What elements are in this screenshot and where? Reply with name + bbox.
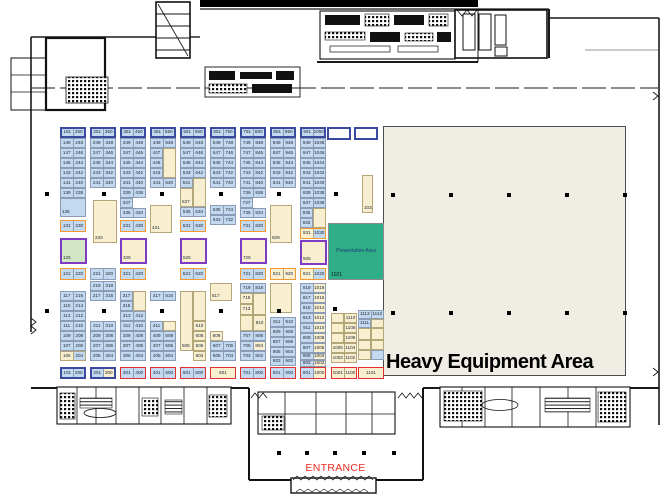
booth-117-216[interactable]: 117216	[60, 291, 86, 301]
booth-449-548[interactable]: 449548	[150, 138, 176, 148]
booth-321-420[interactable]: 321420	[120, 268, 146, 280]
booth-605-704[interactable]: 605704	[210, 351, 236, 361]
booth-cell: 951	[302, 129, 313, 136]
booth-901-1000[interactable]: 9011000	[300, 367, 326, 379]
booth-cell: 1010	[313, 324, 326, 332]
booth-cell: 147	[61, 149, 73, 157]
booth-cell: 907	[301, 344, 313, 352]
booth-343-442[interactable]: 343442	[120, 168, 146, 178]
booth-417-516[interactable]: 417516	[150, 291, 176, 301]
booth-307-406[interactable]: 307406	[120, 341, 146, 351]
booth-139-238[interactable]: 139238	[60, 188, 86, 198]
booth-309-408[interactable]: 309408	[120, 331, 146, 341]
booth-cell: 741	[241, 179, 253, 187]
booth-cell: 1108	[345, 324, 356, 332]
booth-cell: 525	[182, 240, 205, 262]
booth-701-800[interactable]: 701800	[240, 367, 266, 379]
booth-607-706[interactable]: 607706	[210, 341, 236, 351]
booth-111-210[interactable]: 111210	[60, 321, 86, 331]
column-pillar	[565, 193, 569, 197]
booth-cell: 304	[103, 352, 116, 360]
booth-115-214[interactable]: 115214	[60, 301, 86, 311]
booth-cell: 608	[194, 332, 205, 340]
booth-337[interactable]: 337	[120, 198, 133, 208]
booth-cell	[329, 129, 349, 138]
booth-847-946[interactable]: 847946	[270, 148, 296, 158]
booth-113-212[interactable]: 113212	[60, 311, 86, 321]
booth-1001-1100[interactable]: 10011100	[331, 367, 357, 379]
booth-blank[interactable]	[331, 313, 344, 323]
booth-335-434[interactable]: 335434	[120, 208, 146, 218]
booth-cell: 341	[121, 179, 133, 187]
booth-331-430[interactable]: 331430	[120, 220, 146, 232]
booth-925[interactable]: 925	[300, 240, 327, 265]
booth-cell: 903	[301, 361, 313, 366]
booth-219-318[interactable]: 219318	[90, 281, 116, 291]
booth-610[interactable]: 610	[193, 321, 206, 331]
booth-cell: 734	[223, 206, 236, 214]
booth-cell: 351	[122, 129, 133, 136]
booth-737[interactable]: 737	[240, 198, 253, 208]
booth-451-550[interactable]: 451550	[150, 127, 176, 138]
booth-cell	[164, 322, 175, 330]
booth-blank[interactable]	[371, 340, 384, 350]
booth-401-500[interactable]: 401500	[150, 367, 176, 379]
booth-949-1048[interactable]: 9491048	[300, 138, 326, 148]
booth-535-634[interactable]: 535634	[180, 207, 206, 217]
booth-cell: 904	[283, 348, 296, 356]
booth-705-804[interactable]: 705804	[240, 341, 266, 351]
restroom-fixtures	[66, 77, 108, 103]
booth-947-1046[interactable]: 9471046	[300, 148, 326, 158]
booth-249-348[interactable]: 249348	[90, 138, 116, 148]
booth-cell: 649	[211, 139, 223, 147]
booth-811-910[interactable]: 811910	[270, 317, 296, 327]
booth-cell: 412	[133, 312, 146, 320]
booth-810[interactable]: 810	[253, 315, 266, 331]
booth-cell: 901	[301, 368, 313, 378]
booth-606[interactable]: 606	[193, 341, 206, 351]
booth-125[interactable]: 125	[60, 238, 87, 264]
booth-525[interactable]: 525	[180, 238, 207, 264]
column-pillar	[565, 311, 569, 315]
booth-315[interactable]: 315	[120, 301, 133, 311]
booth-blank[interactable]	[331, 333, 344, 343]
booth-cell: 313	[121, 312, 133, 320]
booth-cell: 207	[91, 342, 103, 350]
booth-cell: 1104	[344, 344, 357, 352]
booth-801-900[interactable]: 801900	[270, 367, 296, 379]
floor-plan: Heavy Equipment Area Presentation Area 1…	[0, 0, 669, 500]
booth-345-444[interactable]: 345444	[120, 158, 146, 168]
booth-405-504[interactable]: 405504	[150, 351, 176, 361]
booth-541[interactable]: 541	[180, 178, 193, 188]
presentation-area-label: Presentation Area	[329, 248, 383, 254]
top-left-rooms	[11, 38, 108, 110]
booth-829[interactable]: 829	[270, 205, 292, 243]
booth-cell: 1102	[344, 354, 357, 362]
booth-809-908[interactable]: 809908	[270, 327, 296, 337]
booth-cell: 535	[181, 208, 193, 216]
booth-341-440[interactable]: 341440	[120, 178, 146, 188]
booth-blank[interactable]	[358, 340, 371, 350]
booth-741-840[interactable]: 741840	[240, 178, 266, 188]
booth-cell: 648	[193, 139, 206, 147]
booth-913-1012[interactable]: 9131012	[300, 313, 326, 323]
booth-409-508[interactable]: 409508	[150, 331, 176, 341]
booth-cell: 240	[73, 179, 86, 187]
booth-cell: 115	[61, 302, 73, 310]
booth-339-438[interactable]: 339438	[120, 188, 146, 198]
booth-937-1036[interactable]: 9371036	[300, 198, 326, 208]
booth-1113-1112[interactable]: 11131112	[358, 310, 384, 319]
booth-441-540[interactable]: 441540	[150, 178, 176, 188]
booth-blank[interactable]	[163, 148, 176, 178]
booth-blank[interactable]	[358, 328, 371, 340]
booth-931-1030[interactable]: 9311030	[300, 228, 326, 239]
booth-1111[interactable]: 1111	[358, 319, 371, 328]
booth-cell: 345	[121, 159, 133, 167]
booth-217-316[interactable]: 217316	[90, 291, 116, 301]
booth-cell: 230	[73, 221, 86, 231]
booth-843-942[interactable]: 843942	[270, 168, 296, 178]
booth-blank[interactable]	[354, 127, 378, 140]
column-pillar	[623, 311, 627, 315]
booth-cell: 300	[103, 369, 115, 377]
presentation-area[interactable]: Presentation Area 1021	[328, 223, 384, 280]
booth-cell: 531	[181, 221, 193, 231]
booth-945-1044[interactable]: 9451044	[300, 158, 326, 168]
booth-cell: 919	[301, 284, 313, 292]
booth-803-902[interactable]: 803902	[270, 357, 296, 366]
booth-647-746[interactable]: 647746	[210, 148, 236, 158]
booth-305-404[interactable]: 305404	[120, 351, 146, 361]
booth-135[interactable]: 135	[60, 198, 86, 217]
booth-1005-1104[interactable]: 10051104	[331, 343, 357, 353]
booth-151-250[interactable]: 151250	[60, 127, 86, 138]
booth-205-304[interactable]: 205304	[90, 351, 116, 361]
booth-447[interactable]: 447	[150, 148, 163, 158]
booth-121-220[interactable]: 121220	[60, 268, 86, 280]
booth-1033[interactable]: 1033	[362, 175, 373, 213]
booth-905-1004[interactable]: 9051004	[300, 353, 326, 360]
booth-604[interactable]: 604	[193, 351, 206, 361]
booth-407-506[interactable]: 407506	[150, 341, 176, 351]
booth-cell: 548	[163, 139, 176, 147]
booth-645-744[interactable]: 645744	[210, 158, 236, 168]
booth-cell: 910	[283, 318, 296, 326]
booth-cell: 301	[121, 368, 133, 378]
booth-cell: 246	[73, 149, 86, 157]
booth-909-1008[interactable]: 9091008	[300, 333, 326, 343]
booth-cell: 121	[61, 269, 73, 279]
booth-743-842[interactable]: 743842	[240, 168, 266, 178]
booth-cell: 316	[103, 292, 116, 300]
booth-633-732[interactable]: 633732	[210, 215, 236, 225]
booth-739-838[interactable]: 739838	[240, 188, 266, 198]
booth-cell: 701	[241, 368, 253, 378]
booth-cell: 506	[163, 342, 176, 350]
booth-707-806[interactable]: 707806	[240, 331, 266, 341]
booth-cell: 802	[253, 352, 266, 360]
booth-147-246[interactable]: 147246	[60, 148, 86, 158]
booth-131-230[interactable]: 131230	[60, 220, 86, 232]
booth-cell: 221	[91, 269, 103, 279]
booth-501-600[interactable]: 501600	[180, 367, 206, 379]
booth-935[interactable]: 935	[300, 208, 313, 218]
booth-537[interactable]: 537	[180, 188, 193, 207]
booth-807-906[interactable]: 807906	[270, 337, 296, 347]
booth-cell: 206	[73, 342, 86, 350]
booth-951-1050[interactable]: 9511050	[300, 127, 326, 138]
booth-241-340[interactable]: 241340	[90, 178, 116, 188]
booth-547-646[interactable]: 547646	[180, 148, 206, 158]
booth-cell: 244	[73, 159, 86, 167]
booth-149-248[interactable]: 149248	[60, 138, 86, 148]
booth-919-1018[interactable]: 9191018	[300, 283, 326, 293]
booth-cell: 408	[133, 332, 146, 340]
booth-105-204[interactable]: 105204	[60, 351, 86, 361]
booth-cell: 337	[121, 199, 132, 207]
booth-1003-1102[interactable]: 10031102	[331, 353, 357, 363]
booth-233[interactable]: 233	[93, 200, 117, 243]
booth-349-448[interactable]: 349448	[120, 138, 146, 148]
booth-747-846[interactable]: 747846	[240, 148, 266, 158]
booth-cell: 141	[61, 179, 73, 187]
booth-cell: 1046	[313, 149, 326, 157]
booth-blank[interactable]	[313, 208, 326, 228]
booth-cell: 307	[121, 342, 133, 350]
booth-blank[interactable]	[331, 323, 344, 333]
booth-939-1038[interactable]: 9391038	[300, 188, 326, 198]
booth-221-320[interactable]: 221320	[90, 268, 116, 280]
booth-411[interactable]: 411	[150, 321, 163, 331]
booth-cell: 811	[271, 318, 283, 326]
booth-cell: 844	[253, 159, 266, 167]
booth-cell: 210	[73, 322, 86, 330]
booth-933[interactable]: 933	[300, 218, 313, 228]
booth-cell: 843	[271, 169, 283, 177]
booth-821-920[interactable]: 821920	[270, 268, 296, 280]
booth-cell: 850	[253, 129, 265, 136]
booth-431[interactable]: 431	[150, 205, 172, 233]
booth-cell: 942	[283, 169, 296, 177]
booth-cell: 809	[271, 328, 283, 336]
booth-cell: 441	[151, 179, 163, 187]
booth-745-844[interactable]: 745844	[240, 158, 266, 168]
booth-351-450[interactable]: 351450	[120, 127, 146, 138]
booth-blank[interactable]	[371, 350, 384, 360]
booth-cell: 840	[253, 179, 266, 187]
booth-cell: 739	[241, 189, 253, 197]
booth-313-412[interactable]: 313412	[120, 311, 146, 321]
booth-845-944[interactable]: 845944	[270, 158, 296, 168]
booth-cell: 1016	[313, 294, 326, 302]
booth-521-620[interactable]: 521620	[180, 268, 206, 280]
booth-cell: 742	[223, 169, 236, 177]
booth-cell: 243	[91, 169, 103, 177]
booth-cell: 921	[301, 269, 313, 279]
booth-109-208[interactable]: 109208	[60, 331, 86, 341]
booth-805-904[interactable]: 805904	[270, 347, 296, 357]
booth-cell: 1002	[313, 361, 326, 366]
booth-635-734[interactable]: 635734	[210, 205, 236, 215]
booth-cell: 913	[301, 314, 313, 322]
booth-921-1020[interactable]: 9211020	[300, 268, 326, 280]
heavy-equipment-area[interactable]: Heavy Equipment Area	[383, 126, 626, 376]
booth-cell: 604	[194, 352, 205, 360]
booth-941-1040[interactable]: 9411040	[300, 178, 326, 188]
booth-731-830[interactable]: 731830	[240, 220, 266, 232]
booth-cell: 320	[103, 269, 116, 279]
booth-143-242[interactable]: 143242	[60, 168, 86, 178]
booth-blank[interactable]	[371, 328, 384, 340]
booth-cell: 431	[151, 206, 171, 232]
booth-749-848[interactable]: 749848	[240, 138, 266, 148]
booth-cell: 820	[253, 269, 266, 279]
booth-347-446[interactable]: 347446	[120, 148, 146, 158]
booth-cell: 750	[223, 129, 235, 136]
booth-blank[interactable]	[253, 293, 266, 315]
booth-cell: 1008	[313, 334, 326, 342]
booth-735-834[interactable]: 735834	[240, 208, 266, 218]
booth-505[interactable]: 505	[180, 291, 193, 351]
booth-141-240[interactable]: 141240	[60, 178, 86, 188]
booth-903-1002[interactable]: 9031002	[300, 360, 326, 367]
booth-608[interactable]: 608	[193, 331, 206, 341]
booth-545-644[interactable]: 545644	[180, 158, 206, 168]
booth-543-642[interactable]: 543642	[180, 168, 206, 178]
booth-551-650[interactable]: 551650	[180, 127, 206, 138]
booth-1101[interactable]: 1101	[358, 367, 384, 379]
booth-cell: 125	[62, 240, 85, 262]
booth-725[interactable]: 725	[240, 238, 267, 264]
booth-1110[interactable]: 1110	[344, 313, 357, 323]
booth-549-648[interactable]: 549648	[180, 138, 206, 148]
booth-609[interactable]: 609	[210, 331, 223, 341]
column-pillar	[391, 311, 395, 315]
booth-cell: 451	[152, 129, 163, 136]
booth-cell: 501	[181, 368, 193, 378]
booth-cell: 145	[61, 159, 73, 167]
booth-703-802[interactable]: 703802	[240, 351, 266, 361]
booth-blank[interactable]	[270, 283, 292, 313]
booth-cell: 500	[163, 368, 176, 378]
booth-blank[interactable]	[193, 291, 206, 321]
booth-915-1014[interactable]: 9151014	[300, 303, 326, 313]
booth-cell: 703	[241, 352, 253, 360]
booth-1108[interactable]: 1108	[344, 323, 357, 333]
booth-531-630[interactable]: 531630	[180, 220, 206, 232]
booth-cell: 748	[223, 139, 236, 147]
booth-325[interactable]: 325	[120, 238, 147, 264]
booth-cell: 905	[301, 354, 313, 359]
booth-cell: 609	[211, 332, 222, 340]
booth-247-346[interactable]: 247346	[90, 148, 116, 158]
booth-649-748[interactable]: 649748	[210, 138, 236, 148]
booth-721-820[interactable]: 721820	[240, 268, 266, 280]
booth-cell: 950	[283, 129, 295, 136]
booth-911-1010[interactable]: 9111010	[300, 323, 326, 333]
booth-1106[interactable]: 1106	[344, 333, 357, 343]
booth-443[interactable]: 443	[150, 168, 163, 178]
booth-cell: 107	[61, 342, 73, 350]
booth-311-410[interactable]: 311410	[120, 321, 146, 331]
booth-cell: 1042	[313, 169, 326, 177]
booth-cell: 410	[133, 322, 146, 330]
booth-751-850[interactable]: 751850	[240, 127, 266, 138]
booth-cell: 347	[121, 149, 133, 157]
booth-cell	[194, 179, 205, 206]
booth-209-308[interactable]: 209308	[90, 331, 116, 341]
booth-cell: 342	[103, 169, 116, 177]
booth-251-350[interactable]: 251350	[90, 127, 116, 138]
booth-blank[interactable]	[240, 315, 253, 331]
booth-cell: 420	[133, 269, 146, 279]
booth-cell: 749	[241, 139, 253, 147]
booth-445[interactable]: 445	[150, 158, 163, 168]
booth-cell: 214	[73, 302, 86, 310]
booth-blank[interactable]	[133, 291, 146, 311]
booth-849-948[interactable]: 849948	[270, 138, 296, 148]
booth-245-344[interactable]: 245344	[90, 158, 116, 168]
booth-201-300[interactable]: 201300	[90, 367, 116, 379]
booth-blank[interactable]	[371, 319, 384, 328]
booth-243-342[interactable]: 243342	[90, 168, 116, 178]
booth-blank[interactable]	[193, 178, 206, 207]
booth-641-740[interactable]: 641740	[210, 178, 236, 188]
booth-cell: 508	[163, 332, 176, 340]
booth-643-742[interactable]: 643742	[210, 168, 236, 178]
booth-cell: 1106	[345, 334, 356, 342]
booth-blank[interactable]	[327, 127, 351, 140]
booth-cell: 339	[121, 189, 133, 197]
booth-cell: 321	[121, 269, 133, 279]
booth-851-950[interactable]: 851950	[270, 127, 296, 138]
booth-cell	[332, 314, 343, 322]
booth-301-400[interactable]: 301400	[120, 367, 146, 379]
booth-651-750[interactable]: 651750	[210, 127, 236, 138]
booth-713[interactable]: 713	[240, 304, 253, 315]
column-pillar	[623, 193, 627, 197]
booth-907-1006[interactable]: 9071006	[300, 343, 326, 353]
booth-cell: 650	[193, 129, 205, 136]
booth-cell: 149	[61, 139, 73, 147]
booth-207-306[interactable]: 207306	[90, 341, 116, 351]
booth-211-310[interactable]: 211310	[90, 321, 116, 331]
booth-cell: 344	[103, 159, 116, 167]
booth-cell: 851	[272, 129, 283, 136]
booth-cell: 547	[181, 149, 193, 157]
booth-601[interactable]: 601	[210, 367, 236, 379]
booth-841-940[interactable]: 841940	[270, 178, 296, 188]
booth-617[interactable]: 617	[210, 283, 232, 301]
booth-943-1042[interactable]: 9431042	[300, 168, 326, 178]
booth-719-818[interactable]: 719818	[240, 283, 266, 293]
column-pillar	[392, 451, 396, 455]
booth-917-1016[interactable]: 9171016	[300, 293, 326, 303]
booth-101-200[interactable]: 101200	[60, 367, 86, 379]
booth-blank[interactable]	[163, 321, 176, 331]
booth-cell: 635	[211, 206, 223, 214]
booth-cell: 305	[121, 352, 133, 360]
booth-cell: 647	[211, 149, 223, 157]
booth-blank[interactable]	[358, 350, 371, 360]
booth-107-206[interactable]: 107206	[60, 341, 86, 351]
booth-715[interactable]: 715	[240, 293, 253, 304]
booth-317[interactable]: 317	[120, 291, 133, 301]
booth-145-244[interactable]: 145244	[60, 158, 86, 168]
